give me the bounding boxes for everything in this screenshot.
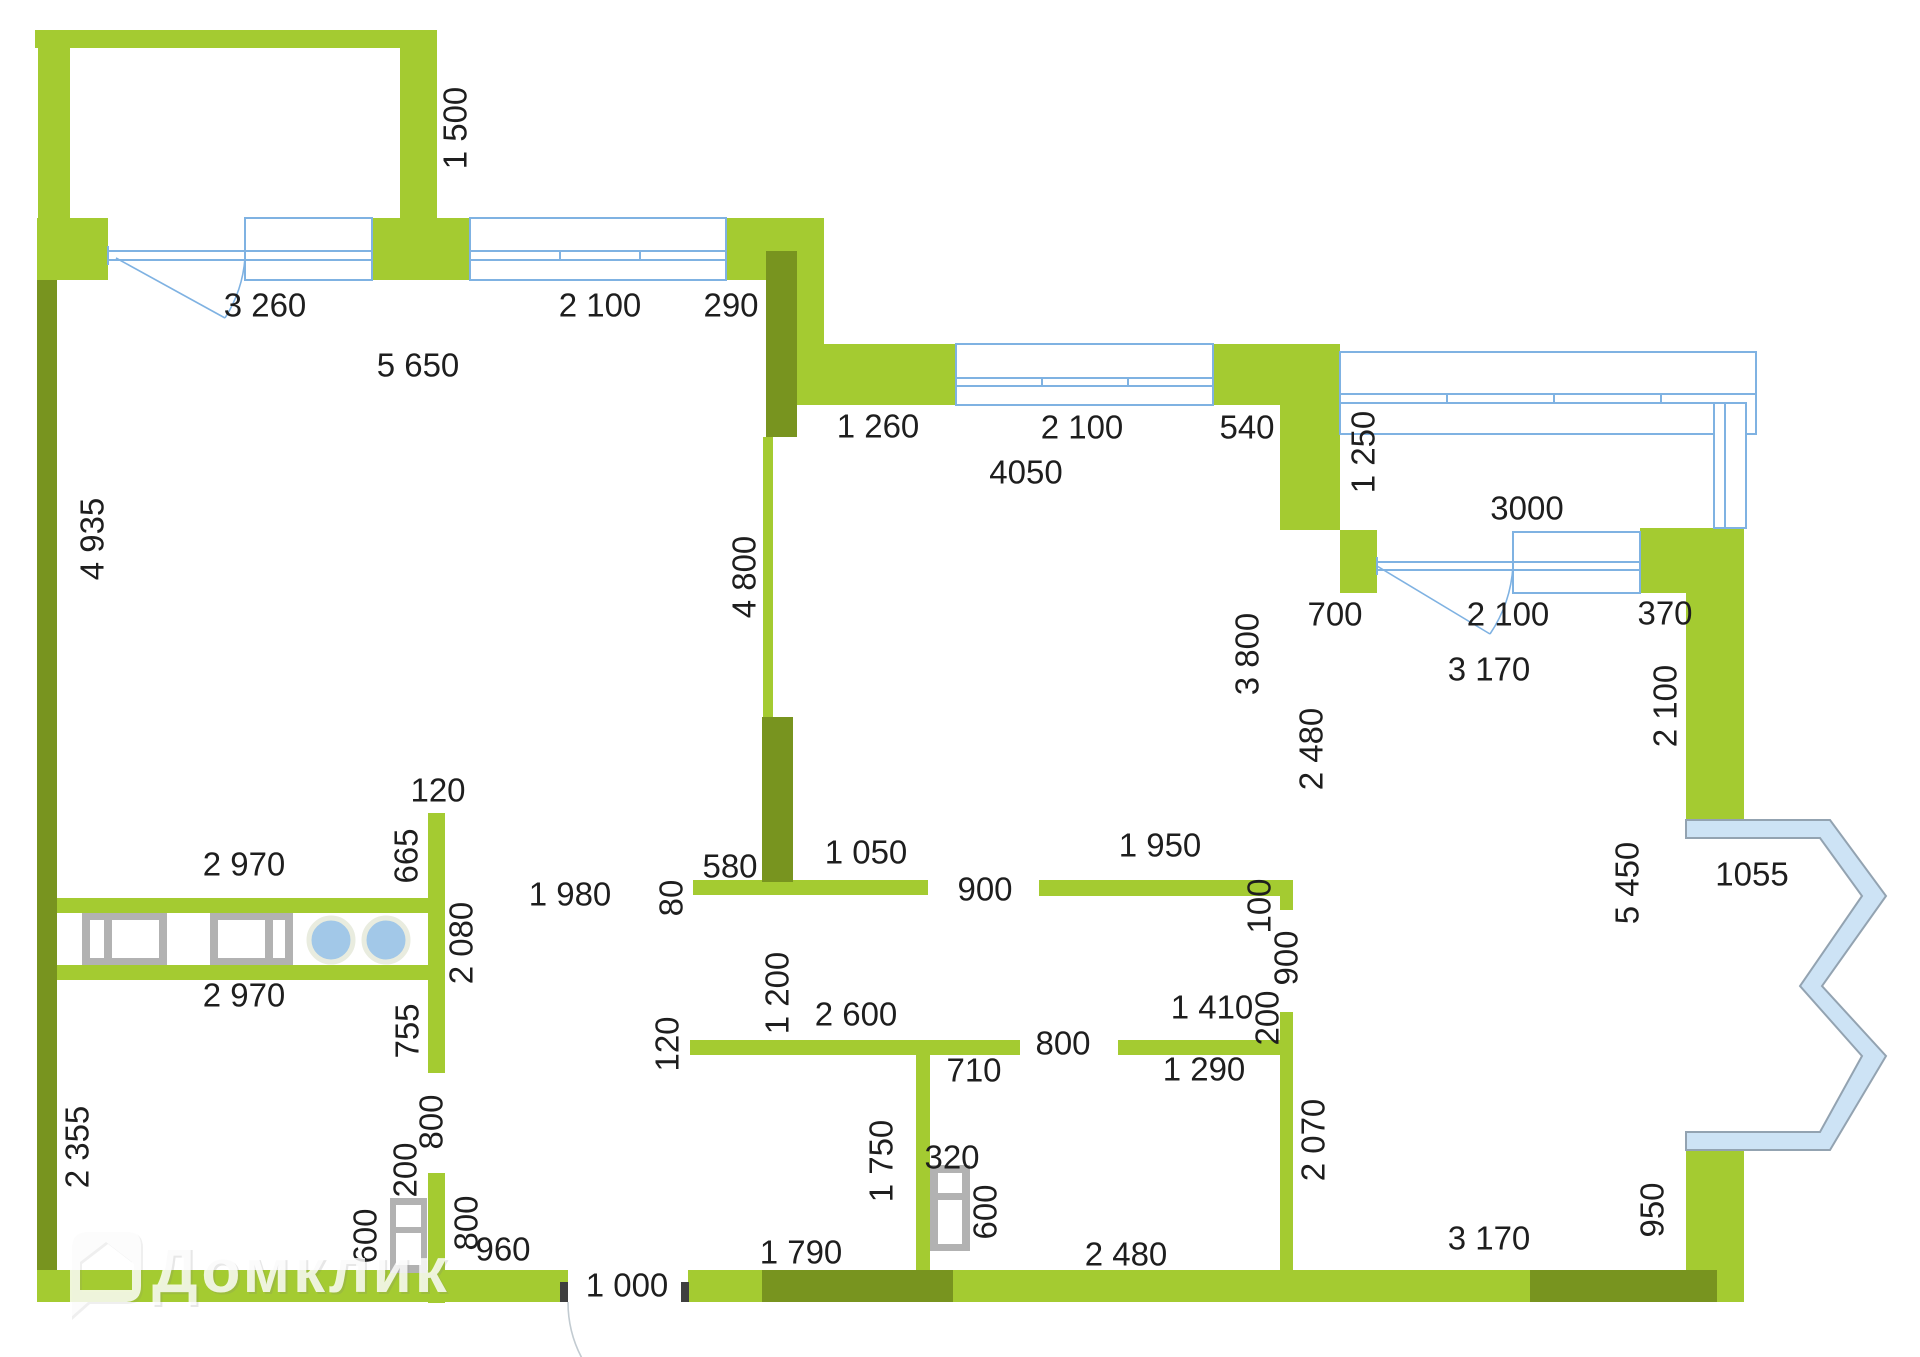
dimension-label: 5 650 — [377, 347, 460, 384]
dimension-label: 2 970 — [203, 846, 286, 883]
dimension-label: 800 — [413, 1094, 450, 1149]
dimension-label: 4 800 — [726, 536, 763, 619]
dimension-label: 2 600 — [815, 996, 898, 1033]
dimension-label: 2 100 — [1647, 665, 1684, 748]
floor-plan: 1 5003 2602 1002905 6501 2602 1005404050… — [0, 0, 1920, 1357]
floor-plan-page: 1 5003 2602 1002905 6501 2602 1005404050… — [0, 0, 1920, 1357]
dimension-label: 950 — [1634, 1182, 1671, 1237]
dimension-label: 3 260 — [224, 287, 307, 324]
dimension-label: 3 170 — [1448, 651, 1531, 688]
dimension-label: 1 500 — [437, 87, 474, 170]
dimension-label: 600 — [967, 1184, 1004, 1239]
dimension-label: 900 — [1268, 930, 1305, 985]
dimension-label: 120 — [649, 1016, 686, 1071]
dimension-label: 2 080 — [443, 902, 480, 985]
dimension-label: 755 — [389, 1003, 426, 1058]
dimension-label: 320 — [924, 1139, 979, 1176]
dimension-label: 1 950 — [1119, 827, 1202, 864]
dimension-label: 710 — [946, 1052, 1001, 1089]
dimension-label: 200 — [1249, 990, 1286, 1045]
loggia-lower-window — [1377, 532, 1640, 593]
dimension-label: 1 200 — [759, 952, 796, 1035]
dimension-label: 1055 — [1715, 856, 1788, 893]
dimension-label: 2 355 — [59, 1106, 96, 1189]
dimension-label: 100 — [1241, 878, 1278, 933]
toilet — [930, 1165, 970, 1251]
dimension-label: 700 — [1307, 596, 1362, 633]
dimension-label: 3 170 — [1448, 1220, 1531, 1257]
dimension-label: 200 — [387, 1142, 424, 1197]
dimension-label: 2 070 — [1295, 1099, 1332, 1182]
dimension-label: 4 935 — [74, 498, 111, 581]
dimension-label: 2 100 — [1041, 409, 1124, 446]
dimension-label: 120 — [410, 772, 465, 809]
dimension-label: 1 290 — [1163, 1051, 1246, 1088]
dimension-label: 4050 — [989, 454, 1062, 491]
watermark-text: Домклик — [152, 1234, 450, 1306]
stove-burner — [364, 918, 408, 962]
dimension-label: 5 450 — [1609, 842, 1646, 925]
dimension-label: 1 260 — [837, 408, 920, 445]
dimension-label: 80 — [653, 880, 690, 917]
dimension-label: 900 — [957, 871, 1012, 908]
dimension-label: 3000 — [1490, 490, 1563, 527]
dimension-label: 1 790 — [760, 1234, 843, 1271]
dimension-label: 1 250 — [1345, 411, 1382, 494]
dimension-label: 2 480 — [1085, 1236, 1168, 1273]
dimension-label: 2 480 — [1293, 708, 1330, 791]
dimension-label: 1 750 — [863, 1120, 900, 1203]
kitchen-counter — [82, 913, 408, 965]
dimension-label: 2 100 — [559, 287, 642, 324]
dimension-label: 800 — [1035, 1025, 1090, 1062]
dimension-label: 370 — [1637, 595, 1692, 632]
dimension-label: 2 970 — [203, 977, 286, 1014]
stove-burner — [309, 918, 353, 962]
dimension-label: 1 000 — [586, 1267, 669, 1304]
dimension-label: 960 — [475, 1231, 530, 1268]
dimension-label: 1 050 — [825, 834, 908, 871]
living-room-window — [956, 344, 1213, 405]
dimension-label: 540 — [1219, 409, 1274, 446]
dimension-label: 1 410 — [1171, 989, 1254, 1026]
dimension-label: 665 — [388, 828, 425, 883]
dimension-label: 290 — [703, 287, 758, 324]
dimension-label: 2 100 — [1467, 596, 1550, 633]
dimension-label: 1 980 — [529, 876, 612, 913]
dimension-label: 580 — [702, 848, 757, 885]
dimension-label: 3 800 — [1229, 613, 1266, 696]
